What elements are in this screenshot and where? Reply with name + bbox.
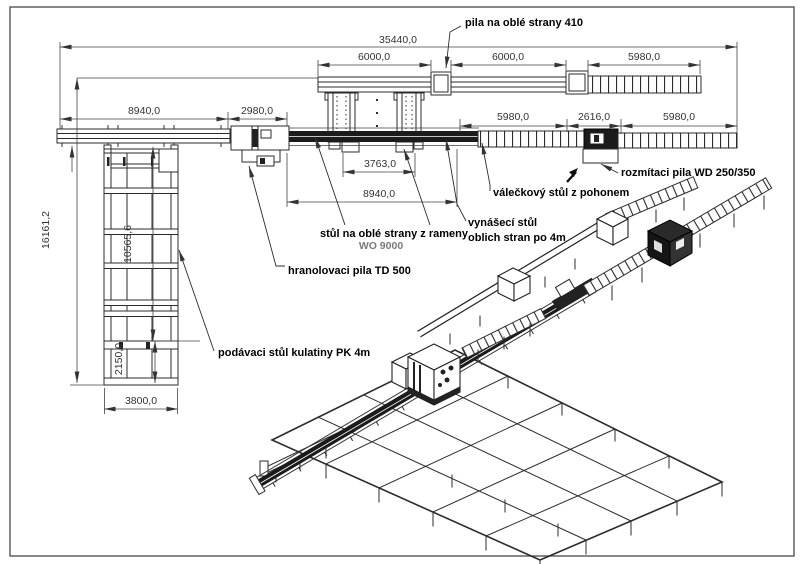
top-ladder-conveyor (588, 76, 701, 93)
iso-saw-cube-lower (498, 268, 530, 301)
roller-table-2 (618, 133, 737, 148)
dim-cross-width: 3763,0 (364, 158, 396, 170)
dim-height-total: 16161,2 (40, 211, 52, 249)
dim-feed-width-text: 3800,0 (125, 395, 157, 407)
label-roller-table: válečkový stůl z pohonem (493, 187, 630, 199)
roller-table-1 (478, 131, 585, 147)
dim-left-1: 8940,0 (128, 105, 160, 117)
cross-transfer-structure (325, 93, 424, 152)
dims-cross: 3763,0 8940,0 (287, 149, 457, 207)
dim-left-2: 2980,0 (241, 105, 273, 117)
main-line-chain-band (289, 128, 479, 146)
dim-total-width-text: 35440,0 (379, 34, 417, 46)
iso-log-deck (272, 350, 722, 564)
label-round-sides-model: WO 9000 (359, 240, 404, 252)
dim-cross-total: 8940,0 (363, 188, 395, 200)
label-saw-round-sides: pila na oblé strany 410 (465, 17, 583, 29)
dim-right-3: 5980,0 (663, 111, 695, 123)
label-round-sides-table: stůl na oblé strany z rameny (320, 228, 469, 240)
label-log-infeed: podávaci stůl kulatiny PK 4m (218, 347, 370, 359)
label-outfeed-2: oblich stran po 4m (468, 232, 566, 244)
top-conveyor-line (318, 71, 701, 95)
dim-feed-width: 3800,0 (104, 388, 178, 414)
dim-top-3: 5980,0 (628, 51, 660, 63)
dim-right-1: 5980,0 (497, 111, 529, 123)
rip-saw-plan (583, 129, 618, 163)
label-outfeed-1: vynášecí stůl (468, 217, 537, 229)
dims-top: 6000,0 6000,0 5980,0 (318, 51, 700, 76)
drawing-svg: 35440,0 6000,0 6000,0 5980,0 (0, 0, 800, 564)
dim-height-lower: 2150,0 (113, 343, 125, 375)
dim-top-1: 6000,0 (358, 51, 390, 63)
cad-drawing-sawmill-layout: 35440,0 6000,0 6000,0 5980,0 (0, 0, 800, 564)
dim-height-upper: 10565,6 (122, 225, 134, 263)
flag-mark (567, 168, 578, 182)
iso-saw-cube-upper (597, 211, 628, 245)
squaring-saw-plan (231, 126, 289, 166)
label-rip-saw: rozmítaci pila WD 250/350 (621, 167, 756, 179)
label-squaring-saw: hranolovaci pila TD 500 (288, 265, 411, 277)
dim-right-2: 2616,0 (578, 111, 610, 123)
main-line-left-rail (57, 125, 230, 147)
iso-outfeed-stand (462, 309, 546, 362)
dim-top-2: 6000,0 (492, 51, 524, 63)
